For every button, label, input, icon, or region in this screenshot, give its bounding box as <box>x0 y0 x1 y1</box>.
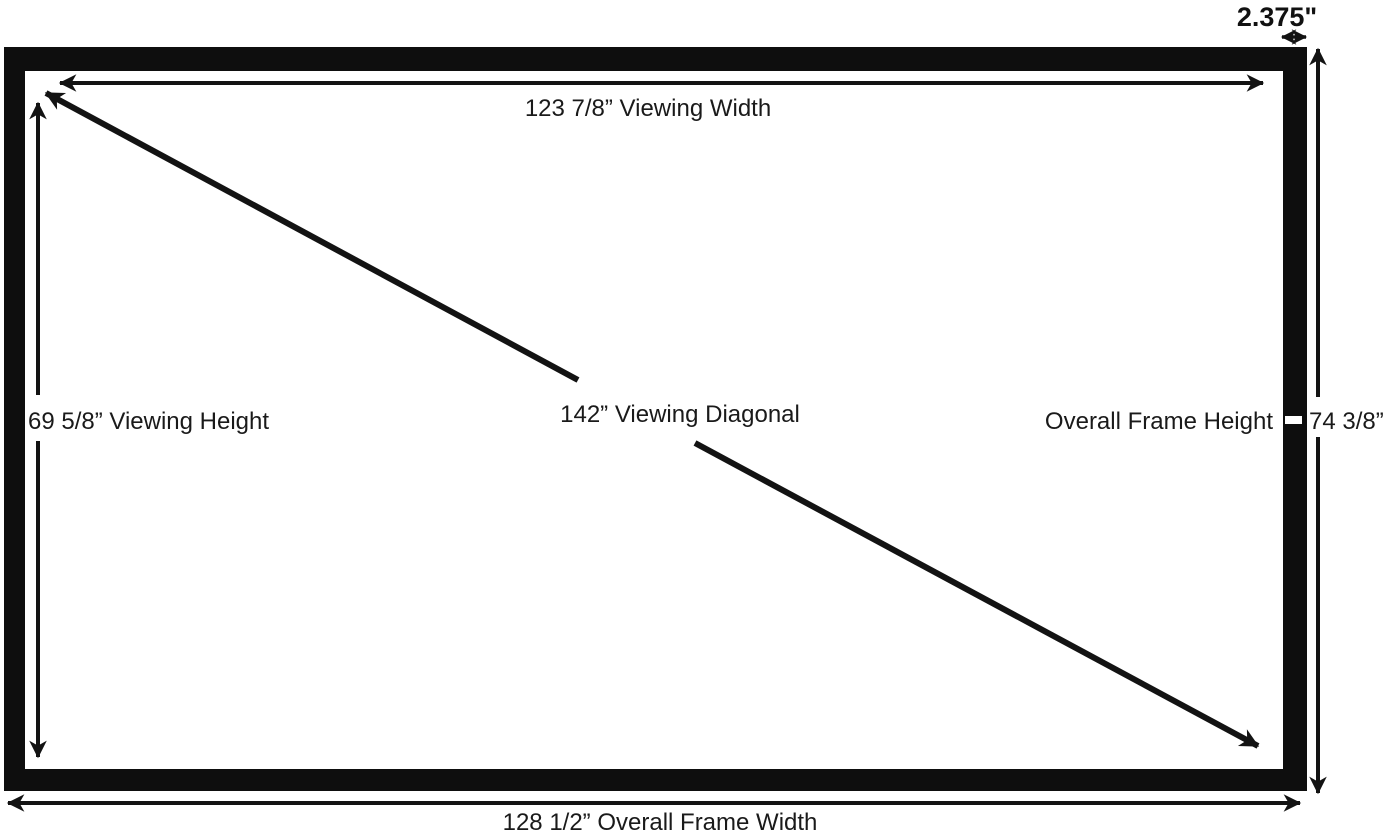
viewing-diagonal-label: 142” Viewing Diagonal <box>560 401 800 428</box>
border-width-label: 2.375" <box>1237 2 1317 32</box>
viewing-width-label: 123 7/8” Viewing Width <box>525 95 771 122</box>
frame-width-label: 128 1/2” Overall Frame Width <box>503 809 818 835</box>
frame-height-label: Overall Frame Height <box>1045 408 1273 435</box>
frame-height-value: 74 3/8” <box>1309 408 1384 435</box>
frame-height-dash <box>1285 416 1302 424</box>
viewing-height-label: 69 5/8” Viewing Height <box>28 408 269 435</box>
screen-dimension-diagram: 123 7/8” Viewing Width 69 5/8” Viewing H… <box>0 0 1390 835</box>
